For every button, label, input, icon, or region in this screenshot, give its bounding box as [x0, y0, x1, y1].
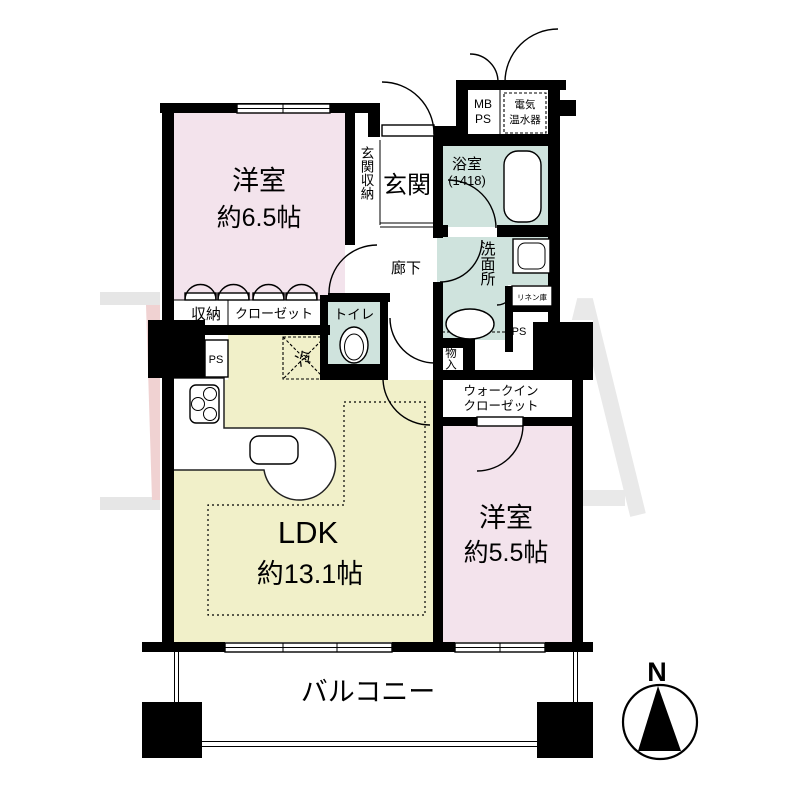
pipe-space-right-label: PS — [512, 326, 527, 338]
entrance-label: 玄関 — [383, 172, 431, 199]
toilet-label: トイレ — [334, 307, 375, 322]
corridor-label: 廊下 — [391, 260, 421, 277]
compass-label: N — [647, 657, 667, 687]
entrance-door-leaf — [382, 125, 434, 136]
ldk-size-label: 約13.1帖 — [257, 559, 364, 589]
meter-box-label-line1: MB — [474, 97, 492, 111]
storage-label: 収納 — [191, 306, 221, 323]
small-storage-label: 物入 — [444, 346, 457, 370]
wic-label-line2: クローゼット — [463, 399, 538, 413]
water-heater-label-line2: 温水器 — [509, 114, 541, 126]
closet-label: クローゼット — [235, 306, 313, 321]
bathroom-label: 浴室 — [452, 156, 482, 173]
linen-label: リネン庫 — [517, 292, 547, 302]
pipe-space-left-label: PS — [209, 354, 224, 366]
stove-icon — [190, 385, 219, 423]
entrance-storage-label: 玄関収納 — [359, 145, 375, 202]
bedroom1-name-label: 洋室 — [232, 166, 286, 196]
bedroom2-size-label: 約5.5帖 — [464, 539, 549, 567]
washroom-label: 洗面所 — [479, 241, 496, 286]
vanity-sink-icon — [446, 309, 494, 339]
ldk-window — [225, 643, 392, 652]
bedroom1-size-label: 約6.5帖 — [217, 204, 302, 232]
toilet-cabinet-note: 上部吊戸棚 — [338, 368, 371, 377]
bedroom2-window — [455, 643, 545, 652]
kitchen-sink-icon — [250, 436, 298, 464]
meter-box-label-line2: PS — [475, 112, 491, 126]
bedroom1-window — [237, 104, 330, 113]
bathtub-icon — [504, 151, 541, 222]
balcony-pillar-right — [537, 702, 593, 758]
ldk-name-label: LDK — [278, 515, 339, 550]
washing-machine-icon — [513, 239, 550, 273]
floor-plan-page: N 洋室 約6.5帖 洋室 約5.5帖 LDK 約13.1帖 玄関 玄関収納 廊… — [0, 0, 800, 800]
water-heater-label-line1: 電気 — [515, 98, 536, 111]
bathroom-size-note: (1418) — [448, 173, 486, 188]
balcony-label: バルコニー — [301, 677, 435, 707]
wic-label-line1: ウォークイン — [463, 384, 538, 398]
floor-plan: N 洋室 約6.5帖 洋室 約5.5帖 LDK 約13.1帖 玄関 玄関収納 廊… — [0, 0, 800, 800]
balcony-pillar-left — [142, 702, 202, 758]
bedroom2-name-label: 洋室 — [479, 503, 533, 533]
bedroom2-door-leaf — [477, 417, 523, 426]
room-bedroom2 — [443, 426, 572, 642]
